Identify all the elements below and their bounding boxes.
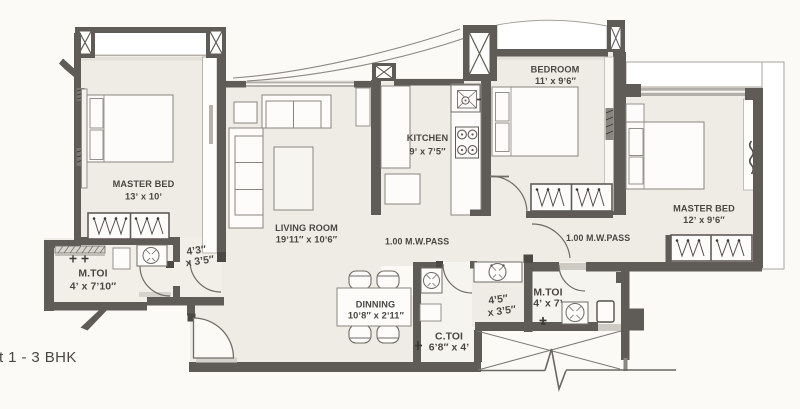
svg-text:LIVING ROOM: LIVING ROOM xyxy=(275,223,338,233)
svg-text:t 1 - 3 BHK: t 1 - 3 BHK xyxy=(0,349,77,366)
svg-text:13ʼ x 10ʼ: 13ʼ x 10ʼ xyxy=(125,192,162,202)
svg-text:10ʼ8″ x 2ʼ11″: 10ʼ8″ x 2ʼ11″ xyxy=(348,311,405,321)
svg-text:6ʼ8″ x 4ʼ: 6ʼ8″ x 4ʼ xyxy=(429,342,470,354)
svg-text:MASTER BED: MASTER BED xyxy=(673,204,735,214)
svg-text:MASTER BED: MASTER BED xyxy=(113,179,175,189)
svg-text:KITCHEN: KITCHEN xyxy=(407,133,449,143)
svg-text:19ʼ11″ x 10ʼ6″: 19ʼ11″ x 10ʼ6″ xyxy=(276,235,338,245)
svg-text:4ʼ x 7ʼ10″: 4ʼ x 7ʼ10″ xyxy=(70,281,116,293)
svg-text:11ʼ x 9ʼ6″: 11ʼ x 9ʼ6″ xyxy=(535,76,577,86)
svg-text:1.00 M.W.PASS: 1.00 M.W.PASS xyxy=(566,233,630,243)
svg-text:4ʼ x 7ʼ: 4ʼ x 7ʼ xyxy=(533,298,563,310)
svg-text:1.00 M.W.PASS: 1.00 M.W.PASS xyxy=(385,237,449,247)
svg-text:9ʼ x 7ʼ5″: 9ʼ x 7ʼ5″ xyxy=(409,147,446,157)
svg-text:DINNING: DINNING xyxy=(356,300,396,310)
svg-text:M.TOI: M.TOI xyxy=(533,288,562,299)
svg-text:BEDROOM: BEDROOM xyxy=(531,65,580,75)
svg-text:M.TOI: M.TOI xyxy=(78,269,107,280)
svg-text:C.TOI: C.TOI xyxy=(435,332,463,343)
svg-text:12ʼ x 9ʼ6″: 12ʼ x 9ʼ6″ xyxy=(683,215,725,225)
